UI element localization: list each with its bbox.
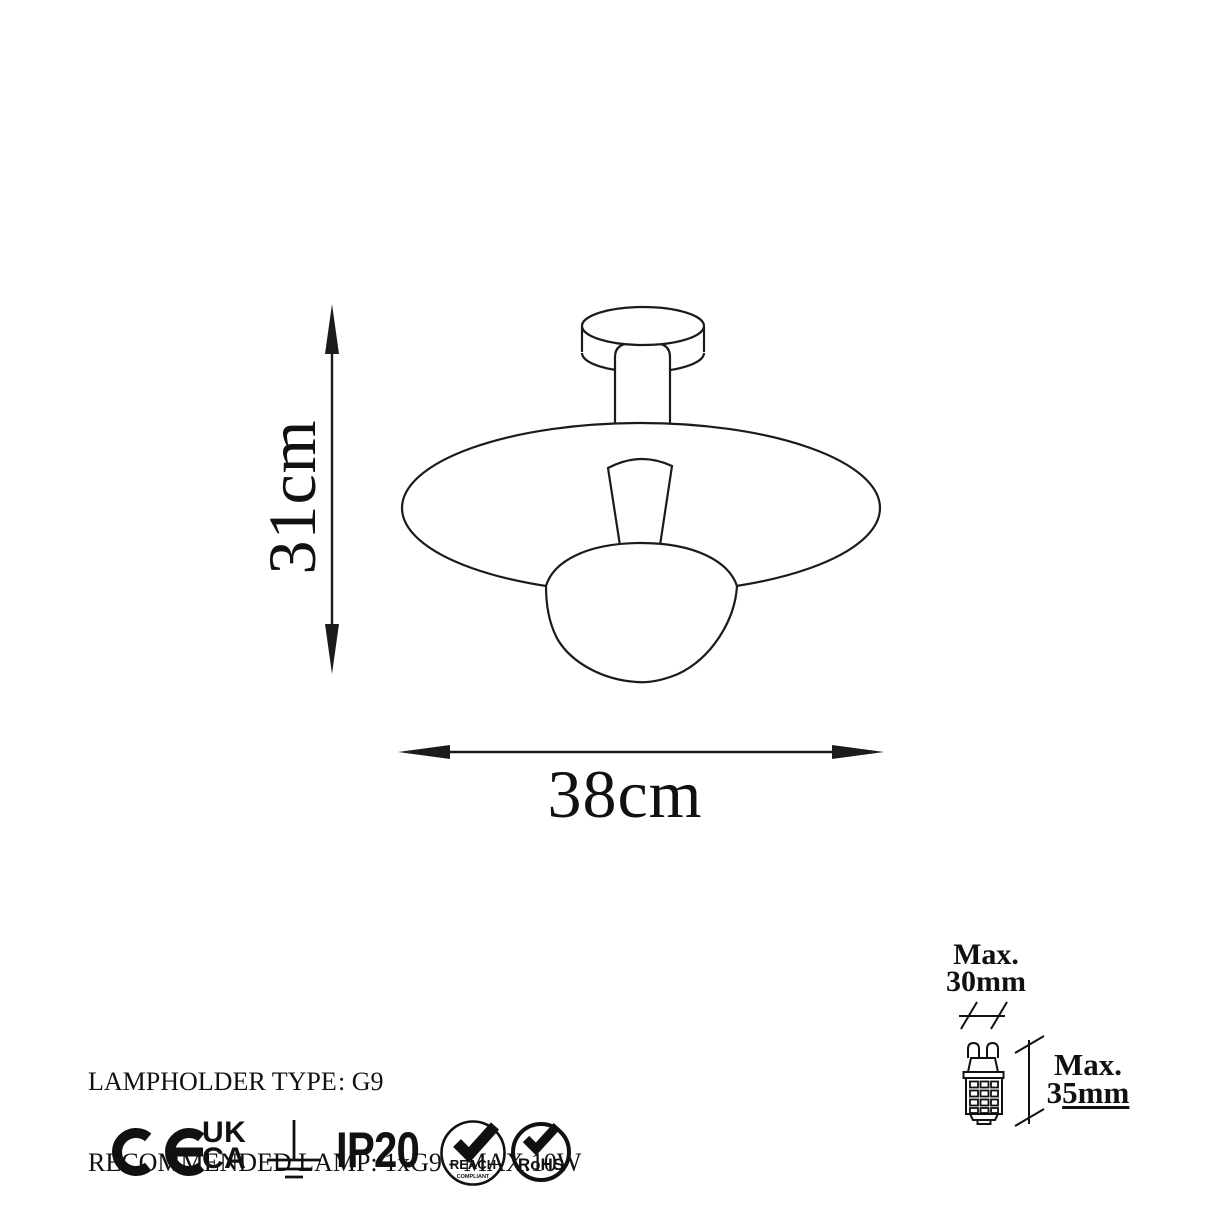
bulb-max-width-line2: 30mm (934, 968, 1038, 995)
bulb-max-height-value: 5mm (1062, 1075, 1129, 1110)
arrow-right-icon (832, 745, 884, 759)
diffuser-dome (546, 543, 737, 682)
spec-lampholder-row: LAMPHOLDER TYPE : G9 (88, 1068, 581, 1095)
ukca-mark: UK CA (202, 1120, 246, 1172)
bulb-height-dimension (1015, 1036, 1044, 1126)
canopy-top (582, 307, 704, 345)
bulb-led-grid (970, 1082, 998, 1114)
width-dimension-label: 38cm (505, 755, 745, 834)
height-dimension-label: 31cm (252, 347, 332, 647)
ukca-bottom: CA (202, 1146, 246, 1172)
g9-bulb-icon (964, 1043, 1004, 1124)
spec-lamp-row: RECOMMENDED LAMP: 1xG9 - MAX.10W (88, 1149, 581, 1176)
bulb-neck (968, 1058, 998, 1072)
bulb-max-height-value-prefix: 3 (1047, 1075, 1063, 1110)
spec-lampholder-label: LAMPHOLDER TYPE (88, 1068, 338, 1095)
spec-block: LAMPHOLDER TYPE : G9 RECOMMENDED LAMP: 1… (88, 1014, 581, 1214)
bulb-max-width-line1: Max. (934, 941, 1038, 968)
stem (615, 343, 670, 430)
spec-lampholder-value: : G9 (338, 1068, 384, 1095)
bulb-width-dimension (959, 1002, 1007, 1029)
product-dimension-sheet: REACH COMPLIANT RoHS (0, 0, 1214, 1214)
bulb-max-width-label: Max. 30mm (934, 941, 1038, 995)
bulb-max-height-line2: 35mm (1041, 1079, 1135, 1107)
bulb-max-height-label: Max. 35mm (1041, 1051, 1135, 1107)
bulb-pin-right (987, 1043, 998, 1058)
arrow-left-icon (398, 745, 450, 759)
bulb-pin-left (968, 1043, 979, 1058)
ip-rating-label: IP20 (336, 1125, 419, 1175)
spec-recommended-lamp: RECOMMENDED LAMP: 1xG9 - MAX.10W (88, 1149, 581, 1176)
